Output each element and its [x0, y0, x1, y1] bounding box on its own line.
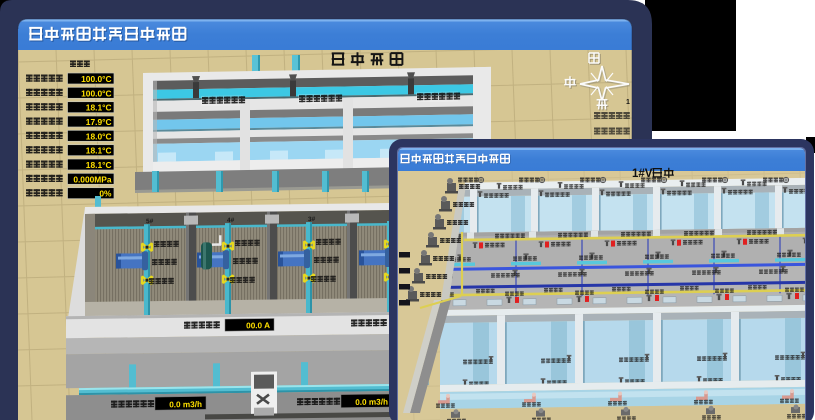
- svg-text:00.0 A: 00.0 A: [246, 321, 270, 330]
- svg-text:100.0°C: 100.0°C: [81, 74, 111, 84]
- svg-text:100.0°C: 100.0°C: [81, 88, 111, 98]
- svg-text:18.0°C: 18.0°C: [86, 131, 112, 141]
- svg-text:4#: 4#: [227, 217, 235, 224]
- svg-text:18.1°C: 18.1°C: [86, 160, 112, 170]
- svg-text:0.0 m3/h: 0.0 m3/h: [169, 400, 202, 409]
- svg-text:0.0 m3/h: 0.0 m3/h: [355, 398, 388, 407]
- svg-text:1: 1: [626, 99, 630, 106]
- svg-text:18.1°C: 18.1°C: [86, 103, 112, 113]
- svg-text:0.000MPa: 0.000MPa: [73, 174, 112, 184]
- svg-text:18.1°C: 18.1°C: [86, 146, 112, 156]
- svg-text:3#: 3#: [308, 216, 316, 223]
- svg-text:0%: 0%: [99, 189, 112, 199]
- svg-text:5#: 5#: [146, 218, 154, 225]
- svg-text:17.9°C: 17.9°C: [86, 117, 112, 127]
